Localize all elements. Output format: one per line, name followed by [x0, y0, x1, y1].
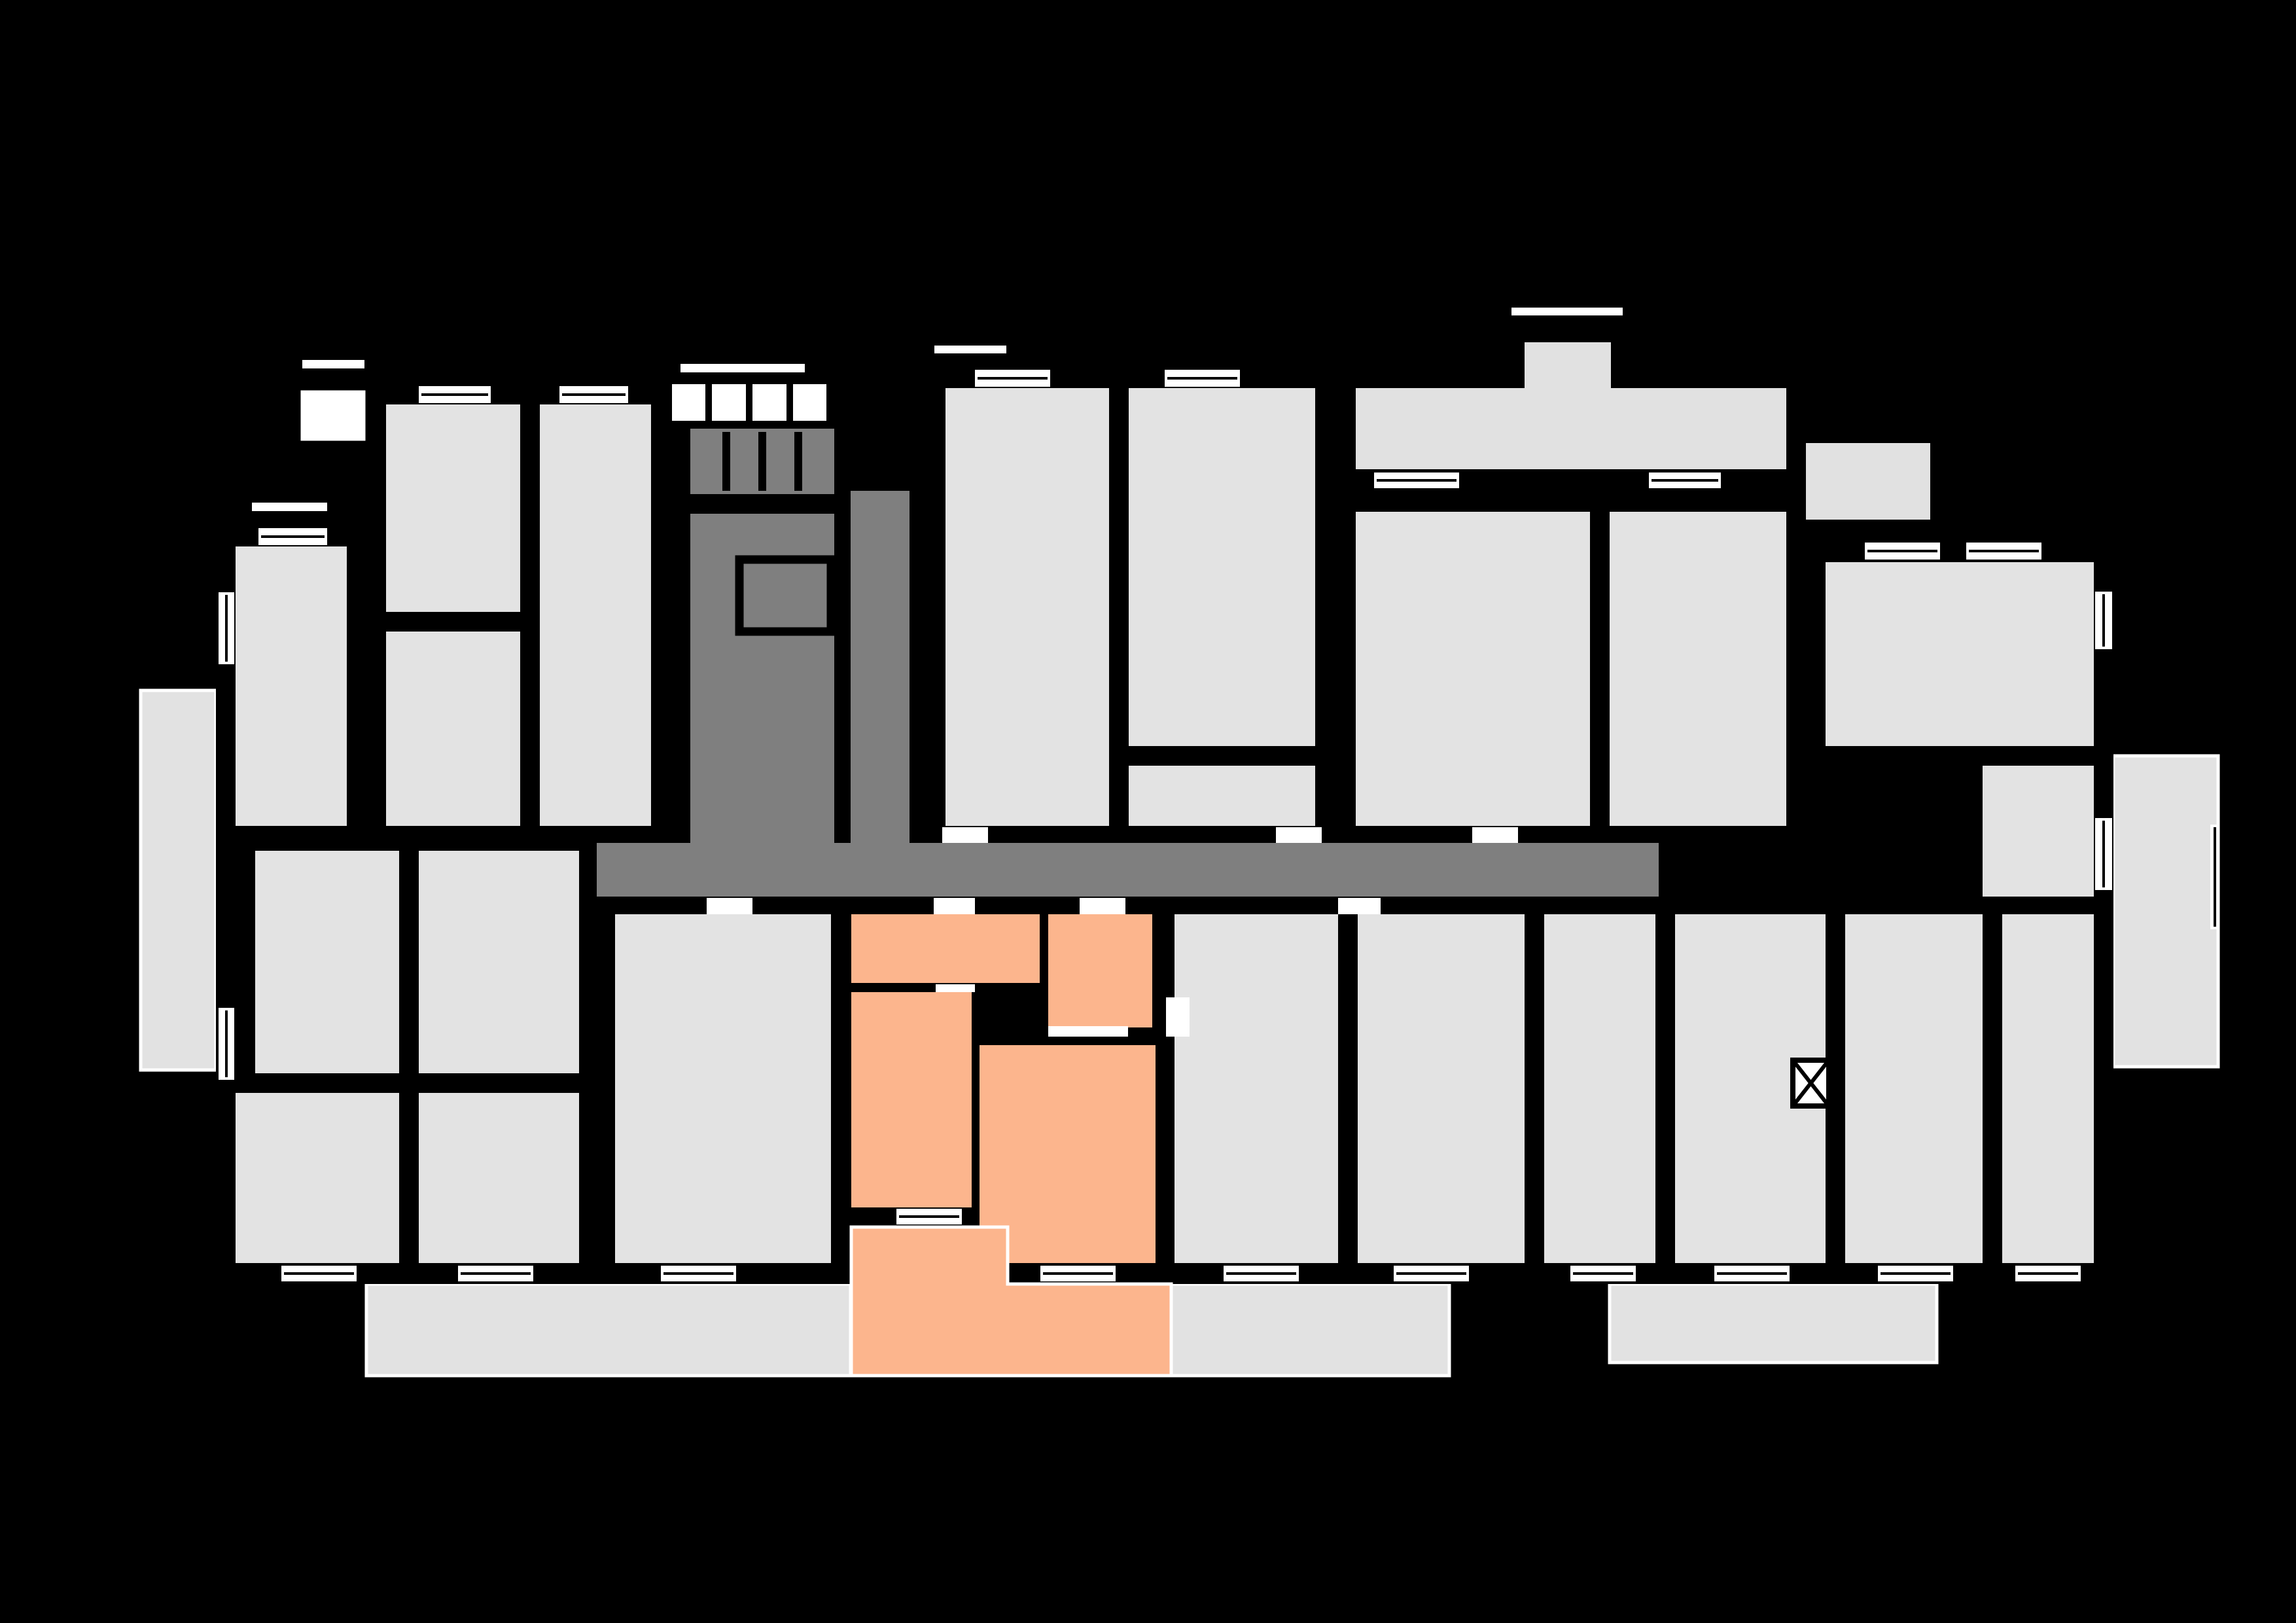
room-mid-1[interactable]: [945, 388, 1109, 826]
room-entry[interactable]: [615, 914, 831, 1263]
room-under-terrace-1[interactable]: [1356, 512, 1590, 826]
door-corridor-unit-room1: [934, 898, 975, 914]
corridor: [597, 843, 1659, 897]
railing-entrance: [302, 360, 364, 368]
unit-room-2[interactable]: [851, 992, 972, 1207]
balcony-right-protrusion: [2113, 756, 2218, 1067]
entrance-box: [298, 387, 368, 444]
room-rw3[interactable]: [1845, 914, 1983, 1263]
room-b3[interactable]: [1544, 914, 1655, 1263]
balcony-strip-mid: [1171, 1284, 1449, 1376]
door-corridor-top-3: [1472, 827, 1518, 843]
room-right-small[interactable]: [1983, 766, 2094, 897]
room-b1[interactable]: [1174, 914, 1338, 1263]
floorplan-canvas: [0, 0, 2296, 1623]
room-cl-lower[interactable]: [386, 632, 520, 826]
room-mid-2[interactable]: [1129, 388, 1315, 746]
room-mid-2b[interactable]: [1129, 766, 1315, 826]
unit-hall[interactable]: [1048, 914, 1152, 1027]
balcony-strip-right: [1610, 1284, 1937, 1363]
room-right-big[interactable]: [1826, 562, 2094, 746]
terrace-step-1-bump: [1525, 342, 1611, 395]
room-lw-mid-2[interactable]: [419, 851, 579, 1073]
door-corridor-unit-hall: [1080, 898, 1125, 914]
door-b1-niche: [1166, 997, 1190, 1037]
door-corridor-entry: [707, 898, 752, 914]
floorplan-page: [0, 0, 2296, 1623]
door-unit-living: [1048, 1026, 1128, 1037]
room-lw-bot-2[interactable]: [419, 1093, 579, 1263]
room-under-terrace-2[interactable]: [1610, 512, 1786, 826]
balcony-strip-left: [366, 1284, 851, 1376]
room-left-top[interactable]: [236, 546, 347, 826]
unit-room-1[interactable]: [851, 914, 1040, 983]
door-unit-inner: [936, 984, 975, 992]
room-cl-upper[interactable]: [386, 404, 520, 612]
core-shaft-strip: [851, 491, 910, 843]
room-b2[interactable]: [1358, 914, 1525, 1263]
room-lw-bot-1[interactable]: [236, 1093, 399, 1263]
railing-mid: [934, 346, 1006, 353]
room-lw-mid-1[interactable]: [255, 851, 399, 1073]
railing-terrace: [1511, 308, 1623, 315]
railing-core: [680, 364, 805, 372]
door-corridor-b2: [1338, 898, 1381, 914]
terrace-step-2: [1806, 443, 1930, 520]
elevator-box: [739, 560, 831, 632]
terrace-step-1: [1356, 388, 1786, 469]
door-corridor-top-2: [1276, 827, 1322, 843]
railing-left: [252, 503, 327, 511]
room-rw4[interactable]: [2002, 914, 2094, 1263]
door-corridor-top-1: [942, 827, 988, 843]
balcony-left-protrusion: [141, 690, 216, 1070]
room-cl-tall[interactable]: [540, 404, 651, 826]
